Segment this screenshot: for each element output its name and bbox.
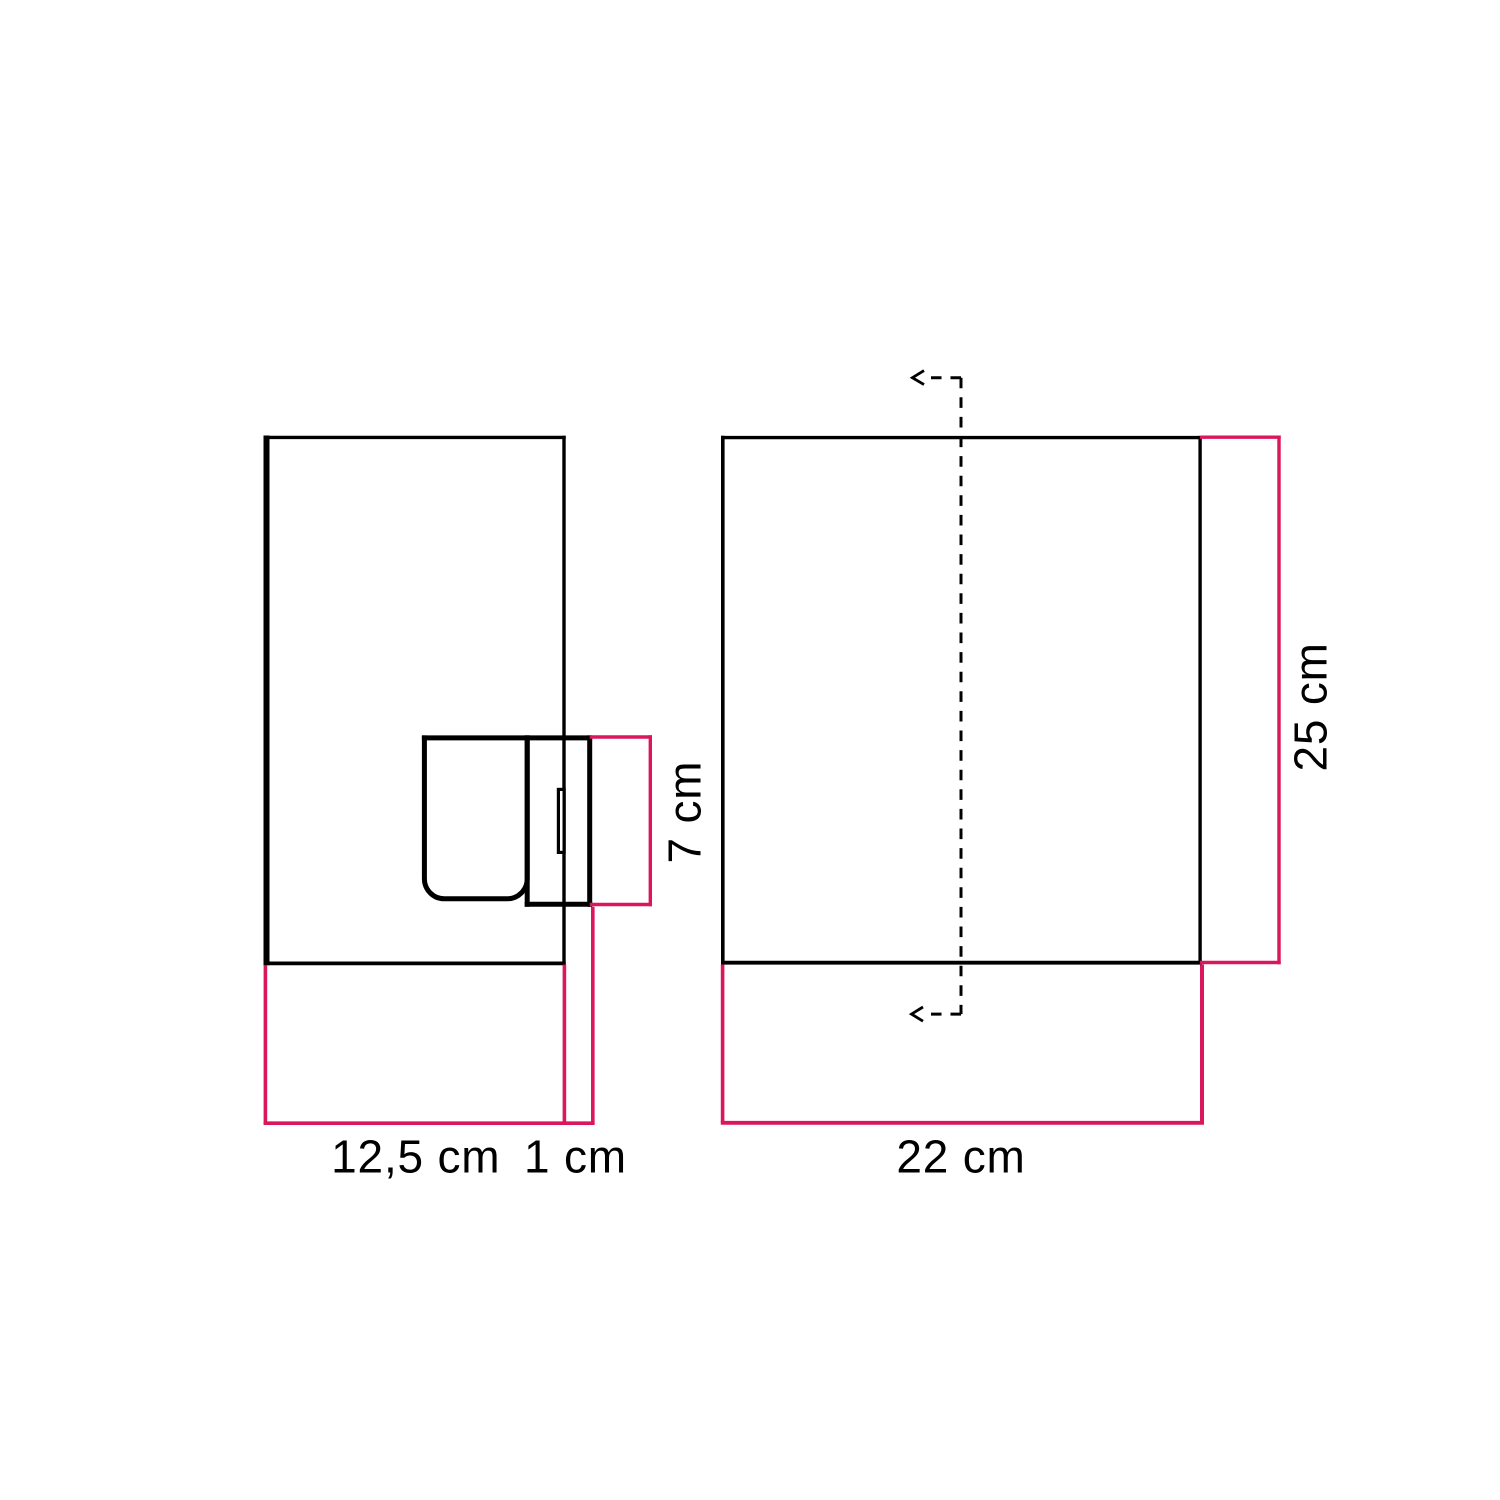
svg-text:1 cm: 1 cm [524,1130,627,1182]
svg-text:22 cm: 22 cm [896,1131,1025,1183]
svg-text:12,5 cm: 12,5 cm [331,1130,500,1182]
svg-text:25 cm: 25 cm [1285,642,1337,771]
svg-text:7 cm: 7 cm [659,761,711,864]
